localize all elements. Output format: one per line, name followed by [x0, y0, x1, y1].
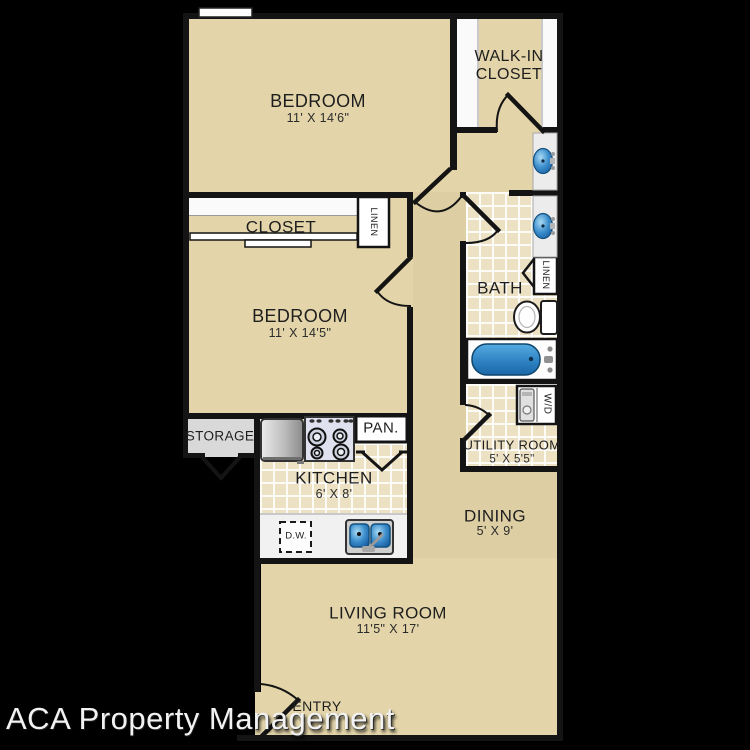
utility-dims: 5' X 5'5": [489, 454, 534, 467]
bedroom-mid-dims: 11' X 14'5": [269, 326, 332, 340]
watermark-text: ACA Property Management: [6, 701, 395, 737]
pantry-label: PAN.: [363, 421, 399, 438]
dishwasher-label: D.W.: [285, 532, 306, 543]
utility-label: UTILITY ROOM: [463, 439, 560, 454]
kitchen-dims: 6' X 8': [316, 487, 353, 501]
floorplan-canvas: BEDROOM 11' X 14'6" WALK-IN CLOSET CLOSE…: [0, 0, 750, 750]
kitchen-label: KITCHEN: [295, 468, 372, 487]
bedroom-mid-label: BEDROOM: [252, 306, 348, 326]
storage-label: STORAGE: [186, 428, 255, 443]
washer-dryer-label: W/D: [541, 394, 552, 415]
closet-label: CLOSET: [246, 217, 316, 236]
bath-label: BATH: [477, 278, 523, 297]
walkin-closet-label: WALK-IN CLOSET: [463, 48, 555, 84]
bedroom-top-label: BEDROOM: [270, 91, 366, 111]
bedroom-top-dims: 11' X 14'6": [287, 111, 350, 125]
dining-label: DINING: [464, 506, 526, 525]
dining-dims: 5' X 9': [477, 524, 514, 538]
living-label: LIVING ROOM: [329, 603, 447, 622]
kitchen-counter: [260, 513, 407, 560]
living-dims: 11'5" X 17': [357, 622, 420, 636]
closet-back-shelf: [189, 198, 358, 216]
vanity-corridor-floor: [450, 133, 557, 192]
storage-bifold-door: [202, 457, 240, 478]
bedroom-window: [199, 8, 252, 17]
hallway-floor: [413, 192, 466, 472]
linen-hall-label: LINEN: [369, 207, 379, 236]
linen-bath-label: LINEN: [541, 260, 551, 289]
